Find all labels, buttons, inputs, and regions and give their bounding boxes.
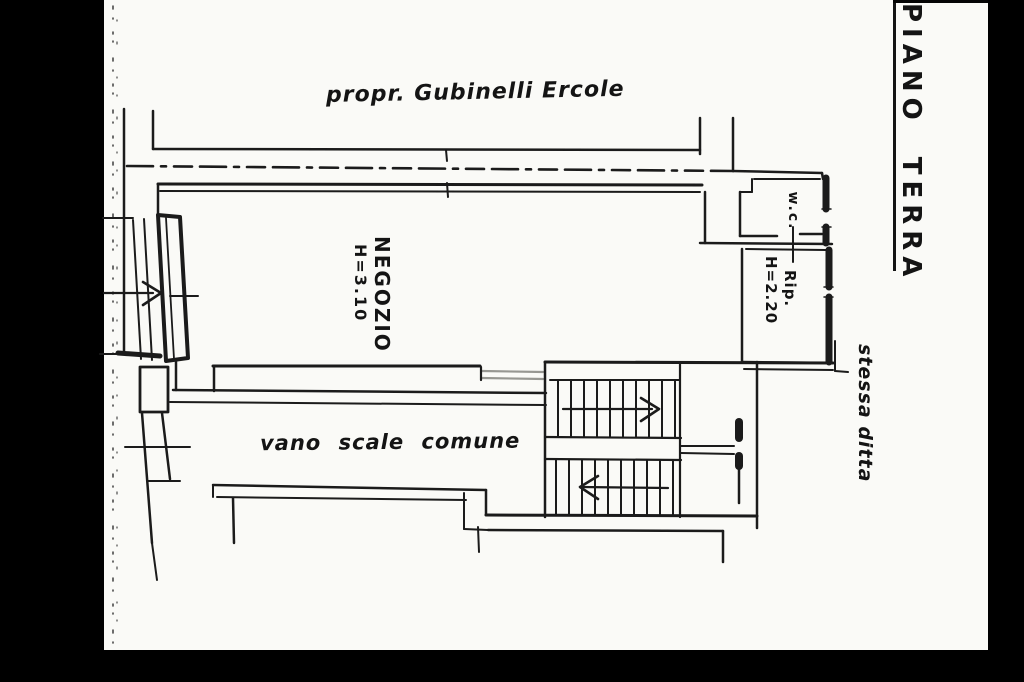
- storage-room-height: H=2.20: [761, 256, 780, 354]
- shop-rear-door-opening: [481, 367, 543, 380]
- storage-room-label: Rip. H=2.20: [761, 256, 799, 354]
- shop-entrance: [100, 215, 198, 412]
- south-walls: [464, 490, 723, 562]
- stairwell-label: vano scale comune: [260, 429, 510, 456]
- floor-title: PIANO TERRA: [893, 3, 926, 271]
- storage-room-name: Rip.: [780, 256, 799, 354]
- staircase: [486, 362, 833, 528]
- shop-room-name: NEGOZIO: [370, 236, 394, 376]
- scanned-floor-plan: propr. Gubinelli Ercole PIANO TERRA NEGO…: [0, 0, 1024, 682]
- shop-room-height: H=3.10: [350, 236, 370, 376]
- left-lower-walls: [125, 413, 190, 580]
- boundary-walls: [124, 109, 823, 352]
- stair-direction-arrows: [563, 398, 668, 499]
- scan-edge-marks: [113, 6, 117, 646]
- adjacent-property-note: stessa ditta: [854, 344, 876, 500]
- party-wall-dashline: [127, 166, 733, 171]
- wc-room-label: w.c.: [785, 181, 801, 241]
- shop-north-wall: [158, 183, 705, 243]
- shop-room-label: NEGOZIO H=3.10: [350, 236, 394, 376]
